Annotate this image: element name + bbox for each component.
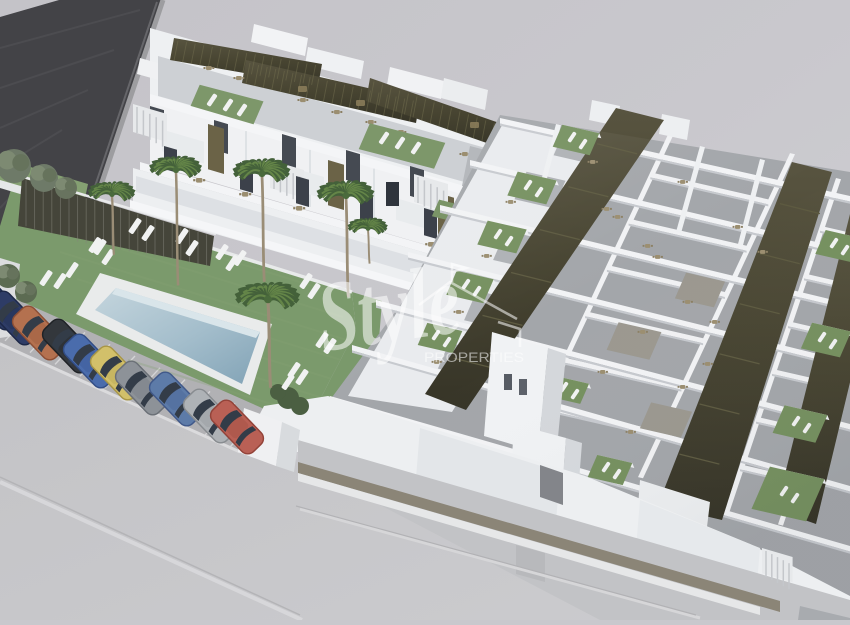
svg-text:PROPERTIES: PROPERTIES xyxy=(424,349,524,365)
